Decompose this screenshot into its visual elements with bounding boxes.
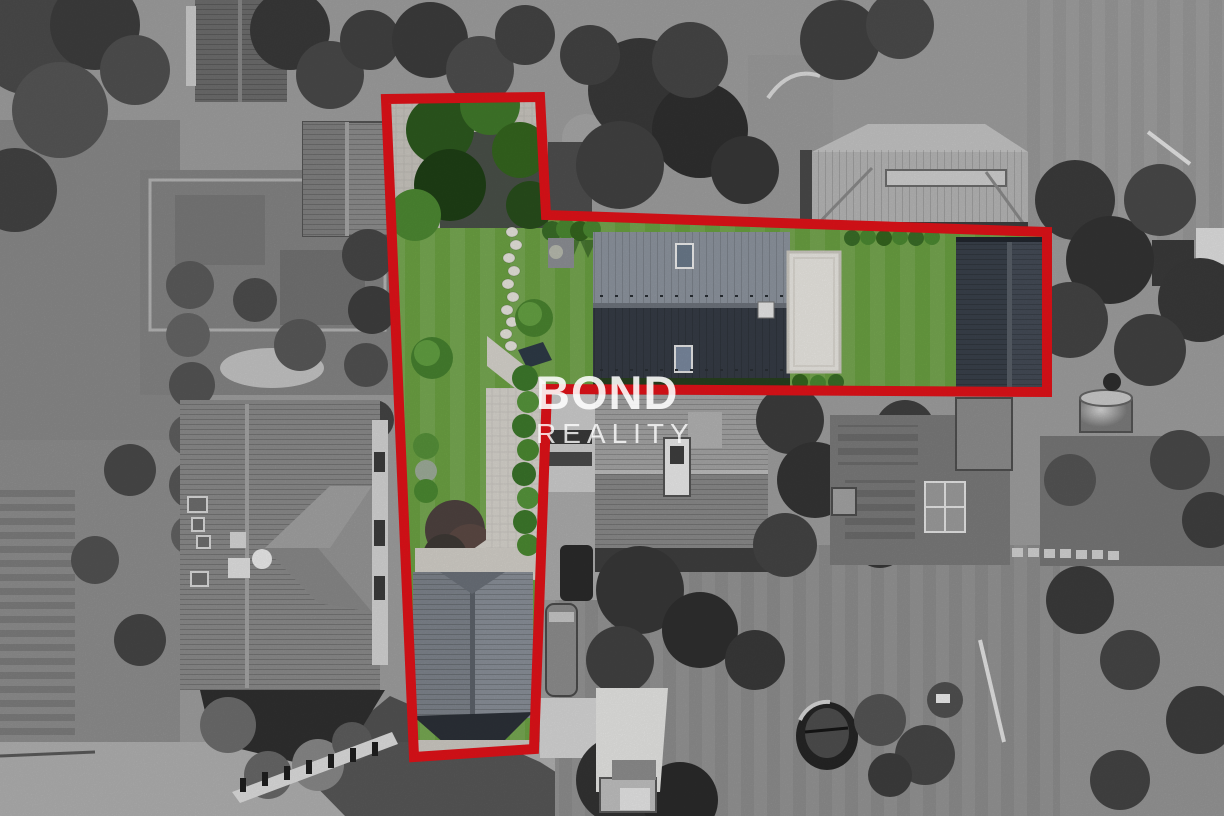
aerial-property-photo: BOND REALITY [0, 0, 1224, 816]
photo-grain-overlay [0, 0, 1224, 816]
aerial-photo-canvas [0, 0, 1224, 816]
